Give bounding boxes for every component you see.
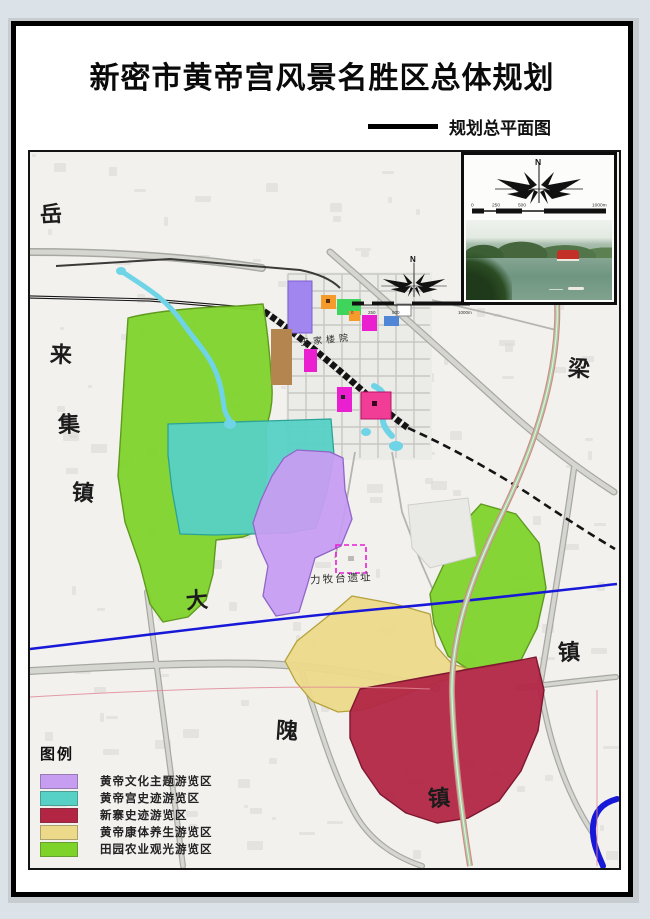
legend-swatch	[40, 774, 78, 789]
town-label: 集	[56, 411, 81, 438]
legend-item: 黄帝康体养生游览区	[40, 824, 213, 840]
legend-label: 田园农业观光游览区	[100, 841, 213, 857]
legend-swatch	[40, 825, 78, 840]
screenshot-root: { "header": { "title": "新密市黄帝宫风景名胜区总体规划"…	[0, 0, 650, 919]
svg-text:250: 250	[492, 203, 500, 209]
heritage-site-mark	[348, 556, 354, 561]
map-north-label: N	[410, 255, 416, 264]
svg-text:1000m: 1000m	[458, 310, 472, 315]
svg-text:500: 500	[518, 203, 526, 209]
legend-label: 新寨史迹游览区	[100, 807, 188, 823]
legend-title: 图例	[40, 743, 213, 764]
photo-foreground-foliage	[466, 252, 512, 300]
inset-box: N 0 250 500 1000m	[461, 152, 617, 305]
legend-label: 黄帝康体养生游览区	[100, 824, 213, 840]
town-label: 梁	[566, 356, 590, 383]
svg-text:250: 250	[368, 310, 376, 315]
legend-item: 田园农业观光游览区	[40, 841, 213, 857]
inset-wind-rose-icon	[495, 163, 583, 204]
subtitle-rule	[368, 124, 438, 129]
inset-scale-bar: 0 250 500 1000m	[464, 201, 614, 217]
svg-text:500: 500	[392, 310, 400, 315]
town-label: 隗	[275, 718, 299, 745]
inset-north-label: N	[535, 157, 541, 167]
map-canvas: N 0 250 500 1000m 岳 来 集 镇	[28, 150, 621, 870]
photo-boat	[568, 287, 584, 290]
subtitle-row: 规划总平面图	[368, 114, 551, 139]
page-title: 新密市黄帝宫风景名胜区总体规划	[16, 53, 628, 97]
heritage-site-label: 力牧台遗址	[310, 570, 373, 586]
legend-label: 黄帝宫史迹游览区	[100, 790, 200, 806]
legend-swatch	[40, 808, 78, 823]
legend-item: 黄帝宫史迹游览区	[40, 790, 213, 806]
svg-text:1000m: 1000m	[592, 203, 607, 209]
legend-swatch	[40, 842, 78, 857]
legend-item: 黄帝文化主题游览区	[40, 773, 213, 789]
photo-red-pavilion	[557, 250, 579, 261]
town-label: 大	[185, 587, 209, 615]
town-label: 岳	[39, 201, 63, 228]
plan-sheet: 新密市黄帝宫风景名胜区总体规划 规划总平面图	[8, 18, 639, 903]
town-label: 镇	[427, 785, 451, 812]
page-subtitle: 规划总平面图	[449, 114, 551, 139]
legend-label: 黄帝文化主题游览区	[100, 773, 213, 789]
legend-item: 新寨史迹游览区	[40, 807, 213, 823]
sheet-inner: 新密市黄帝宫风景名胜区总体规划 规划总平面图	[11, 21, 633, 897]
legend-swatch	[40, 791, 78, 806]
town-label: 镇	[71, 480, 95, 507]
lake-photo-thumbnail	[466, 220, 612, 300]
svg-text:0: 0	[471, 203, 474, 209]
town-label: 镇	[557, 639, 580, 666]
legend: 图例 黄帝文化主题游览区 黄帝宫史迹游览区 新寨史迹游览区 黄帝康体养生游览区	[40, 743, 213, 858]
town-label: 来	[48, 342, 73, 369]
